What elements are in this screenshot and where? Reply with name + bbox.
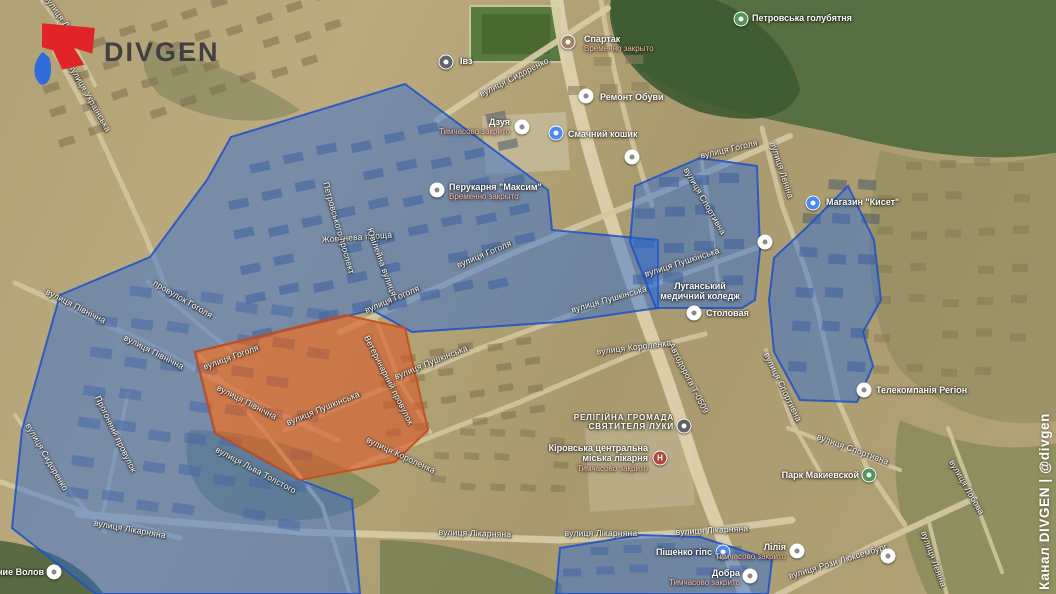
street-label: вулиця Спортивна [816,431,891,466]
spartak-label: СпартакВременно закрыто [584,34,654,54]
hromada-luky-marker[interactable] [677,419,692,434]
ivz-marker[interactable] [439,55,454,70]
poi-a-marker[interactable] [625,150,640,165]
street-label: вулиця Спортивна [682,166,729,237]
street-label: вулиця Гоголя [455,238,513,270]
street-label: вулиця Лобова [947,458,986,516]
telekompania-rehion-label: Телекомпанія Регіон [876,385,967,395]
street-label: вулиця Спортивна [762,351,804,423]
perukarnia-maksym-label: Перукарня "Максим"Временно закрыто [449,182,542,202]
street-label: вулиця Леніна [919,530,949,589]
street-label: вулиця Пушкінська [393,343,469,382]
street-label: вулиця Короленка [596,337,672,356]
mahazyn-kyset-marker[interactable] [806,196,821,211]
dobra-marker[interactable] [743,569,758,584]
street-label: вулиця Північна [215,383,278,422]
street-label: вулиця Північна [44,287,107,326]
street-label: вулиця Пушкінська [285,389,361,428]
street-label: вулиця Лікарняна [675,523,748,537]
street-label: вулиця Лікарняна [439,527,512,540]
street-label: вулиця Пушкінська [570,283,648,314]
holubiatnia-label: Петровська голубятня [752,13,852,23]
ivz-label: Івз [460,56,473,66]
satellite-map[interactable]: вулиця Дзюбивулиця Українськавулиця Сидо… [0,0,1056,594]
divgen-logo-text: DIVGEN [104,37,220,68]
divgen-logo-mark [18,12,98,92]
remont-obuvi-marker[interactable] [579,89,594,104]
volov-label: ление Волов [0,567,44,577]
street-label: вулиця Льва Толстого [214,444,298,495]
street-label: провулок Гоголя [151,278,214,320]
street-label: Ветеринарний провулок [362,334,416,427]
medychnyi-koledzh-label: Луганськиймедичний коледж [660,281,740,302]
dzuya-marker[interactable] [515,120,530,135]
street-label: вулиця Лікарняна [93,518,166,540]
street-label: вулиця Леніна [768,140,796,199]
miska-likarnia-marker[interactable]: H [653,451,668,466]
stolovaya-label: Столовая [706,308,749,318]
hromada-luky-label: РЕЛІГІЙНА ГРОМАДАСВЯТИТЕЛЯ ЛУКИ [574,413,674,431]
remont-obuvi-label: Ремонт Обуви [600,92,664,102]
street-label: вулиця Лікарняна [565,528,638,538]
volov-marker[interactable] [47,565,62,580]
street-label: вулиця Пушкінська [643,245,720,279]
mahazyn-kyset-label: Магазин "Кисет" [826,197,899,207]
dobra-label: ДобраТимчасово закрито [669,568,740,588]
divgen-logo: DIVGEN [18,12,220,92]
street-label: Прогонний провулок [93,394,139,474]
park-makiyevskoi-label: Парк Макиевской [782,470,859,480]
street-label: Петровського проспект [321,181,357,275]
street-label: вулиця Північна [122,333,185,372]
street-label: Жовтнева площа [321,230,392,245]
channel-watermark: Канал DIVGEN | @divgen [1037,413,1052,590]
liliya-marker[interactable] [790,544,805,559]
holubiatnia-marker[interactable] [734,12,749,27]
perukarnia-maksym-marker[interactable] [430,183,445,198]
poi-b-marker[interactable] [758,235,773,250]
park-makiyevskoi-marker[interactable] [862,468,877,483]
poi-c-marker[interactable] [881,549,896,564]
pishenko-hips-label: Пішенко гіпс [656,547,712,557]
street-label: вулиця Гоголя [202,342,260,371]
spartak-marker[interactable] [561,35,576,50]
street-label: вулиця Короленка [365,435,437,476]
telekompania-rehion-marker[interactable] [857,383,872,398]
street-label: вулиця Гоголя [699,138,758,161]
street-label: вулиця Сидоренко [478,55,551,99]
smachnyi-koshyk-label: Смачний кошик [568,129,637,139]
street-label: Автодорога Т-0509 [667,341,711,415]
liliya-label: ЛіліяТимчасово закрито [715,542,786,562]
street-label: вулиця Сидоренко [24,421,71,492]
miska-likarnia-label: Кіровська центральнаміська лікарняТимчас… [549,443,648,473]
stolovaya-marker[interactable] [687,306,702,321]
smachnyi-koshyk-marker[interactable] [549,126,564,141]
dzuya-label: ДзуяТимчасово закрито [439,117,510,137]
